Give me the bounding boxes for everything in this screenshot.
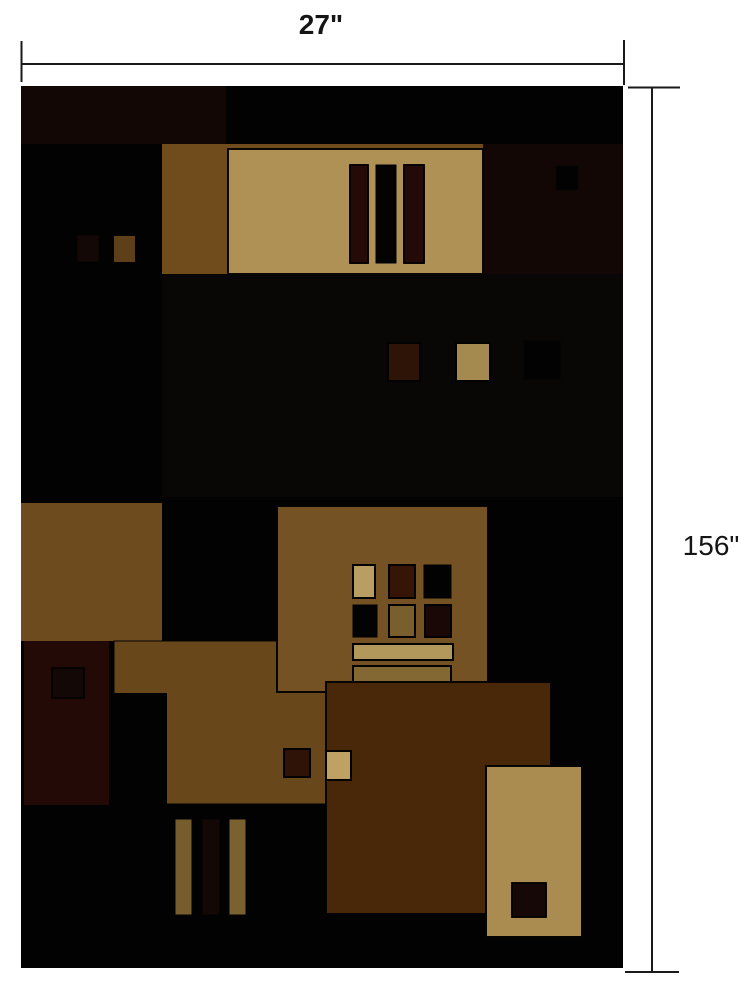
svg-text:27": 27" (299, 9, 343, 40)
svg-text:156": 156" (683, 530, 740, 561)
